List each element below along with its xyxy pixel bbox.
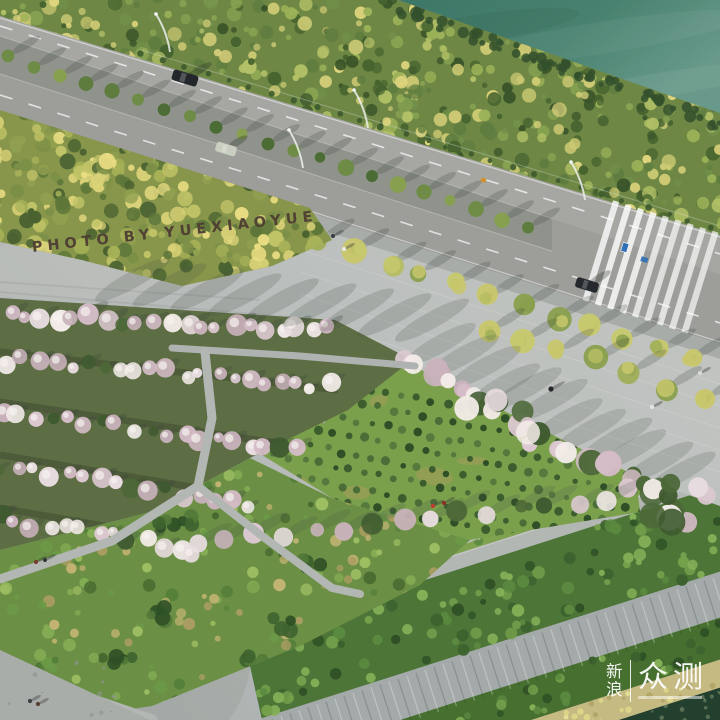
logo-small-text-bar bbox=[638, 696, 702, 699]
sina-zhongce-logo: 新 浪 众测 bbox=[606, 660, 708, 702]
scene-canvas bbox=[0, 0, 720, 720]
aerial-park-photo: PHOTO BY YUEXIAOYUE 新 浪 众测 bbox=[0, 0, 720, 720]
logo-product-block: 众测 bbox=[638, 663, 708, 699]
brand-char-top: 新 bbox=[606, 663, 623, 681]
sina-brand-characters: 新 浪 bbox=[606, 663, 623, 700]
product-name: 众测 bbox=[638, 663, 708, 693]
brand-char-bottom: 浪 bbox=[606, 681, 623, 699]
logo-divider bbox=[630, 660, 632, 702]
